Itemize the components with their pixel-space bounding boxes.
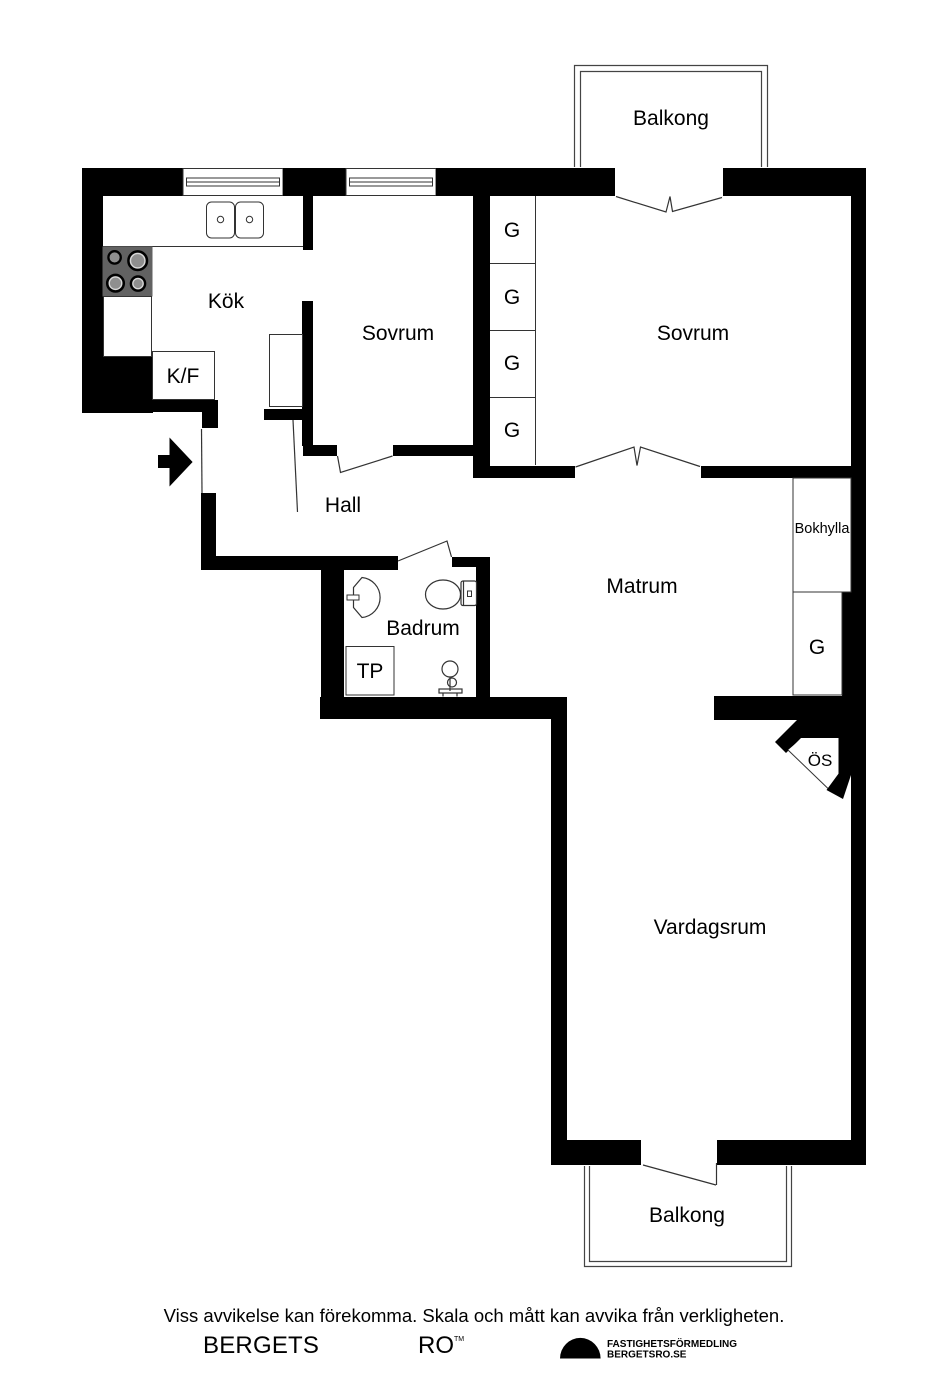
svg-text:Hall: Hall	[325, 494, 361, 517]
svg-text:Kök: Kök	[208, 290, 245, 313]
svg-text:Vardagsrum: Vardagsrum	[654, 916, 767, 939]
svg-text:K/F: K/F	[167, 365, 200, 388]
svg-text:BERGETSRO.SE: BERGETSRO.SE	[607, 1350, 687, 1361]
svg-text:G: G	[504, 352, 520, 375]
svg-text:Viss avvikelse kan förekomma.: Viss avvikelse kan förekomma. Skala och …	[164, 1305, 785, 1326]
svg-text:Matrum: Matrum	[606, 575, 677, 598]
svg-text:FASTIGHETSFÖRMEDLING: FASTIGHETSFÖRMEDLING	[607, 1337, 737, 1350]
svg-text:Bokhylla: Bokhylla	[795, 521, 851, 537]
svg-text:G: G	[504, 219, 520, 242]
svg-text:Balkong: Balkong	[649, 1204, 725, 1227]
svg-text:TM: TM	[454, 1336, 464, 1343]
svg-text:BERGETS: BERGETS	[203, 1332, 319, 1359]
svg-text:Balkong: Balkong	[633, 107, 709, 130]
svg-text:G: G	[809, 636, 825, 659]
svg-text:ÖS: ÖS	[808, 751, 833, 770]
svg-text:Sovrum: Sovrum	[657, 322, 729, 345]
svg-text:TP: TP	[357, 660, 384, 683]
svg-text:Badrum: Badrum	[386, 617, 460, 640]
svg-text:G: G	[504, 419, 520, 442]
svg-text:RO: RO	[418, 1332, 454, 1359]
svg-text:G: G	[504, 286, 520, 309]
svg-text:Sovrum: Sovrum	[362, 322, 434, 345]
